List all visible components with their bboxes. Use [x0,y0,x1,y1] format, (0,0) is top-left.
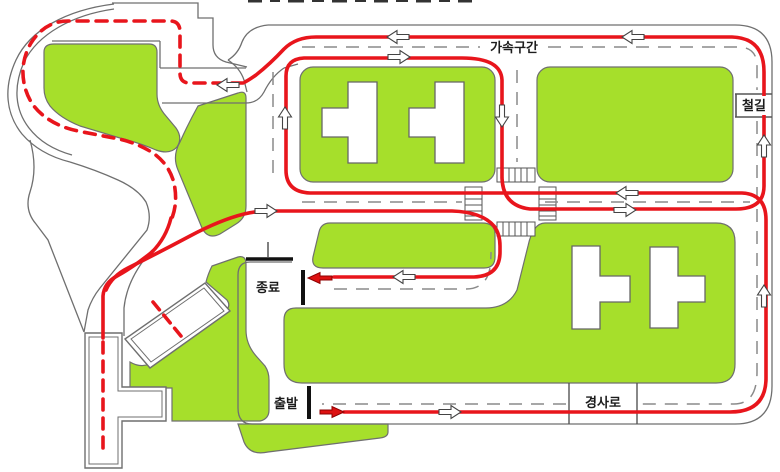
route-arrow-right-icon [388,51,410,64]
course-map: 가속구간 철길 종료 출발 경사로 [0,0,780,472]
course-map-svg: 가속구간 철길 종료 출발 경사로 [0,0,780,472]
route-arrow-down-icon [496,105,509,127]
route-arrow-right-icon [255,205,277,218]
route-arrow-right-icon [439,406,461,419]
label-start: 출발 [274,396,298,411]
route-arrow-left-icon [393,271,415,284]
label-finish: 종료 [256,280,280,295]
route-arrow-up-icon [279,107,292,129]
cropped-text-sliver [248,0,472,3]
grass-block-middle [313,223,495,268]
route-arrow-right-icon [614,204,636,217]
label-ramp: 경사로 [585,395,621,410]
start-arrow-icon [320,407,344,418]
finish-arrow-icon [308,273,332,284]
label-railroad: 철길 [742,98,766,113]
label-acceleration-zone: 가속구간 [490,40,538,55]
route-arrow-up-icon [758,285,771,307]
route-arrow-left-icon [387,31,409,44]
route-arrow-left-icon [622,31,644,44]
grass-strip-bottom [238,424,388,453]
grass-block-right [537,67,733,182]
route-arrow-up-icon [758,135,771,157]
route-arrow-left-icon [217,79,239,92]
route-arrow-left-icon [616,187,638,200]
grass-wedge [175,92,246,236]
